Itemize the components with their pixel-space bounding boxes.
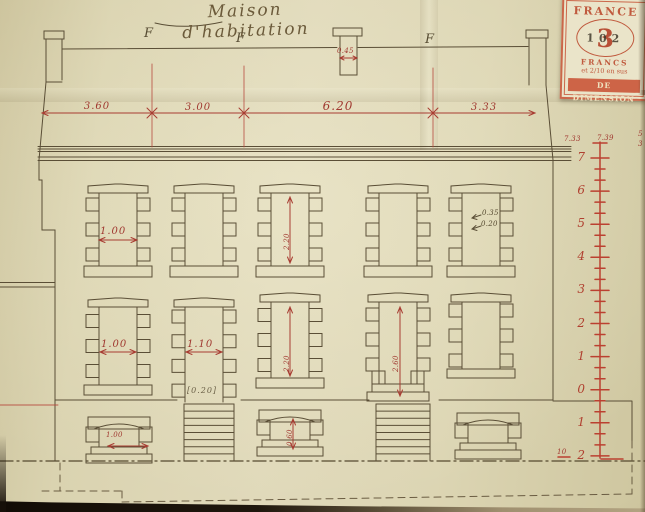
window-r1c1-quoin	[137, 223, 150, 236]
window-r1c2-lintel	[174, 184, 234, 193]
dim-b3-label: 0.60	[286, 429, 294, 446]
window-r2c5-quoin	[500, 354, 513, 367]
window-r2c3-quoin	[258, 309, 271, 322]
window-r2c5-quoin	[500, 304, 513, 317]
window-r1c5-quoin	[500, 248, 513, 261]
window-r1c3-quoin	[258, 248, 271, 261]
window-r2c1-quoin	[137, 315, 150, 328]
window-r1c4-quoin	[366, 198, 379, 211]
axis-letter-f: F	[144, 26, 154, 41]
basement-window-3-sill	[455, 450, 521, 459]
door-r2c2-quoin	[172, 310, 185, 323]
window-r1c2-jambs	[185, 193, 223, 266]
door-r2c4-quoin	[366, 333, 379, 346]
dim-6-20: 6.20	[316, 99, 360, 113]
stamp-surcharge: et 2/10 en sus	[565, 66, 643, 76]
window-r1c3-quoin	[309, 198, 322, 211]
axis-letter-f: F	[425, 32, 435, 47]
door-r2c2-lintel	[174, 298, 234, 307]
window-r1c5-lintel	[451, 184, 511, 193]
basement-window-3-jambs	[468, 425, 508, 443]
window-r2c3-quoin	[309, 334, 322, 347]
window-r1c1-sill	[84, 266, 152, 277]
scale-number: 1	[566, 415, 586, 429]
window-r2c3-quoin	[309, 359, 322, 372]
elevation-drawing	[0, 0, 645, 512]
window-r2c1-lintel	[88, 298, 148, 307]
scale-number: 6	[566, 183, 586, 197]
window-r1c5-quoin	[449, 223, 462, 236]
door-r2c4-threshold	[367, 392, 429, 401]
chimney-right-cap	[526, 30, 548, 38]
window-r1c5-quoin	[449, 248, 462, 261]
dim-r2c3-label: 2.20	[283, 355, 291, 372]
dim-r2c1-label: 1.00	[101, 339, 127, 350]
dim-r2c4-label: 2.60	[392, 355, 400, 372]
basement-window-2-sill	[257, 447, 323, 456]
window-r2c5-jambs	[462, 302, 500, 369]
chimney-dim-label: 0.45	[337, 47, 354, 55]
right-base-step	[553, 401, 632, 441]
scale-number: 0	[566, 382, 586, 396]
window-r1c1-quoin	[86, 248, 99, 261]
chimney-right	[529, 38, 546, 85]
left-wall	[39, 82, 55, 461]
window-r2c5-lintel	[451, 293, 511, 302]
window-r1c5-sill	[447, 266, 515, 277]
window-r1c3-quoin	[258, 198, 271, 211]
window-r1c1-lintel	[88, 184, 148, 193]
basement-window-2-arch	[265, 417, 315, 422]
window-r1c2-quoin	[172, 248, 185, 261]
scale-number: 2	[566, 448, 586, 462]
dim-b1-label: 1.00	[106, 431, 123, 439]
door-r2c4-quoin	[366, 358, 379, 371]
scale-number: 1	[566, 349, 586, 363]
window-r1c5-quoin	[500, 198, 513, 211]
scale-header-right: 7.39	[597, 134, 614, 142]
stamp-frame: FRANCE 3 102 FRANCS et 2/10 en sus DE DI…	[564, 0, 645, 97]
window-r1c3-lintel	[260, 184, 320, 193]
window-r2c5-quoin	[449, 304, 462, 317]
dim-3-33: 3.33	[462, 102, 506, 113]
window-r1c3-quoin	[258, 223, 271, 236]
window-r1c2-quoin	[172, 198, 185, 211]
basement-window-1-arch	[94, 424, 144, 429]
stamp-caption: DE DIMENSION	[568, 78, 640, 93]
window-r1c4-quoin	[417, 248, 430, 261]
scale-number: 7	[566, 150, 586, 164]
door-r2c2-quoin	[172, 359, 185, 372]
window-r1c3-quoin	[309, 248, 322, 261]
window-r2c5-quoin	[500, 329, 513, 342]
leader-r1c5	[472, 226, 481, 231]
window-r1c4-quoin	[417, 198, 430, 211]
window-r1c4-quoin	[417, 223, 430, 236]
foundation	[122, 494, 632, 502]
window-r2c1-quoin	[137, 340, 150, 353]
door-r2c2-quoin	[223, 310, 236, 323]
window-r2c3-quoin	[258, 334, 271, 347]
leader-r1c5	[472, 215, 481, 220]
dim-r1c1-label: 1.00	[100, 226, 126, 237]
stamp-overprint: 102	[577, 31, 633, 45]
window-r2c5-quoin	[449, 329, 462, 342]
window-r2c1-quoin	[86, 340, 99, 353]
window-r2c3-lintel	[260, 293, 320, 302]
axis-letter-f: F	[236, 31, 246, 46]
dim-r1c5a-label: 0.35	[482, 209, 499, 217]
window-r2c1-quoin	[86, 315, 99, 328]
basement-window-3-sill	[460, 443, 516, 450]
photo-left-edge	[0, 435, 6, 512]
window-r1c2-quoin	[223, 223, 236, 236]
window-r1c5-quoin	[500, 223, 513, 236]
window-r2c1-sill	[84, 385, 152, 395]
dim-r1c5b-label: 0.20	[481, 220, 498, 228]
right-wall	[546, 85, 553, 400]
window-r2c5-quoin	[449, 354, 462, 367]
dim-3-60: 3.60	[77, 101, 117, 112]
window-r2c3-quoin	[258, 359, 271, 372]
roof-line	[358, 47, 528, 48]
window-r1c5-quoin	[449, 198, 462, 211]
window-r1c4-sill	[364, 266, 432, 277]
window-r1c1-quoin	[137, 198, 150, 211]
window-r2c5-sill	[447, 369, 515, 378]
window-r1c4-quoin	[366, 223, 379, 236]
scale-number: 2	[566, 316, 586, 330]
pencil-note: [0.20]	[187, 386, 217, 395]
scale-number: 4	[566, 249, 586, 263]
window-r1c2-quoin	[223, 248, 236, 261]
photo-right-edge	[640, 90, 645, 512]
window-r1c1-quoin	[86, 223, 99, 236]
window-r1c3-sill	[256, 266, 324, 277]
window-r1c4-lintel	[368, 184, 428, 193]
stamp-country: FRANCE	[567, 4, 645, 19]
cornice-lines	[38, 147, 571, 161]
scale-bottom-note: 10	[557, 448, 567, 456]
window-r1c1-quoin	[137, 248, 150, 261]
dim-3-00: 3.00	[178, 102, 218, 113]
door-r2c4-quoin	[417, 308, 430, 321]
window-r1c5-jambs	[462, 193, 500, 266]
window-r1c4-quoin	[366, 248, 379, 261]
scale-number: 3	[566, 282, 586, 296]
window-r1c2-quoin	[223, 198, 236, 211]
door-r2c2-quoin	[172, 335, 185, 348]
window-r1c2-sill	[170, 266, 238, 277]
door-r2c4-quoin	[417, 333, 430, 346]
scale-header-left: 7.33	[564, 135, 581, 143]
door-r2c4-quoin	[417, 358, 430, 371]
chimney-left	[46, 39, 62, 82]
window-r2c1-quoin	[86, 365, 99, 378]
window-r1c4-jambs	[379, 193, 417, 266]
foundation	[42, 491, 122, 502]
door-r2c2-quoin	[172, 384, 185, 397]
dim-r1c3-label: 2.20	[283, 233, 291, 250]
dim-r2c2-label: 1.10	[187, 339, 213, 350]
chimney-mid	[340, 36, 357, 75]
door-r2c2-quoin	[223, 384, 236, 397]
basement-window-3-arch	[463, 420, 513, 425]
basement-window-1-sill	[91, 447, 147, 454]
window-r1c1-quoin	[86, 198, 99, 211]
window-r2c3-quoin	[309, 309, 322, 322]
window-r2c3-sill	[256, 378, 324, 388]
door-r2c4-lintel	[368, 293, 428, 302]
chimney-left-cap	[44, 31, 64, 39]
door-r2c2-quoin	[223, 359, 236, 372]
left-floor-band	[0, 283, 55, 288]
door-r2c4-quoin	[366, 308, 379, 321]
window-r1c3-quoin	[309, 223, 322, 236]
photo-topright-edge	[638, 0, 645, 95]
scale-number: 5	[566, 216, 586, 230]
revenue-stamp: FRANCE 3 102 FRANCS et 2/10 en sus DE DI…	[560, 0, 645, 101]
photographed-elevation-drawing: Maison d'habitation 0.453.603.006.203.33…	[0, 0, 645, 512]
stamp-oval: 3 102	[576, 18, 635, 58]
window-r2c1-quoin	[137, 365, 150, 378]
window-r1c2-quoin	[172, 223, 185, 236]
roof-line	[62, 48, 337, 50]
door-r2c2-quoin	[223, 335, 236, 348]
